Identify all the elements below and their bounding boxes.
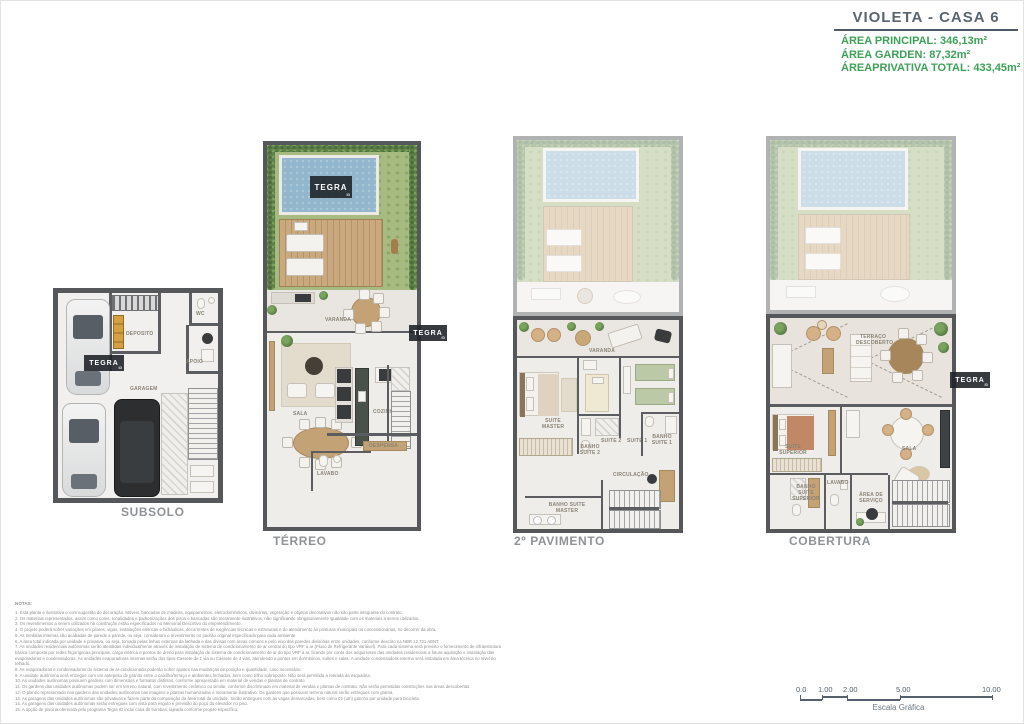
room-label-lavabo: LAVABO [827,480,849,486]
chair [355,323,366,334]
office-chair [647,474,657,484]
sala-round-table [890,416,924,450]
wall [641,412,679,414]
sink [333,455,341,463]
faded-garden [513,136,683,316]
room-label-sala: SALA [293,411,307,417]
garden: TEGRAID [267,145,417,290]
desk [623,366,631,394]
sink [533,516,542,525]
plant [595,322,604,331]
wall [327,433,417,436]
area-garden: ÁREA GARDEN: 87,32m² [841,49,1021,63]
tegra-id: ID [347,193,351,197]
pillow [779,419,786,430]
chair [882,424,894,436]
wall [517,356,679,358]
chair [922,352,933,363]
shrub-border [517,140,679,147]
wall [840,407,842,475]
room-label-terraco: TERRAÇO DESCOBERTO [856,334,890,346]
car-rear-glass [71,474,98,489]
shrub-border [267,145,275,290]
room-label-banho-suite-2: BANHO SUITE 2 [575,444,605,456]
plant [319,291,328,300]
tegra-brand: TEGRA [89,360,119,367]
room-label-banho-suite-master: BANHO SUITE MASTER [547,502,587,514]
sun-lounger [805,253,841,270]
faded-lower-floor [766,136,956,314]
pav2-shell: VARANDA SUITE MASTER SUITE 2 SUI [513,316,683,533]
utility-cabinet [190,465,214,477]
storage-boxes [113,315,124,349]
scale-tick: 5.00 [896,685,911,694]
pool: TEGRAID [279,155,379,215]
wall [601,480,603,529]
bed-suite1 [635,364,675,381]
room-label-sala: SALA [902,446,916,452]
car-windshield [69,419,99,443]
title-rule [834,29,1018,31]
pouf [817,320,827,330]
scale-segment [847,699,900,701]
sink [208,297,215,304]
faded-garden [766,136,956,314]
round-chair [826,326,841,341]
chair [912,370,923,381]
area-principal: ÁREA PRINCIPAL: 346,13m² [841,35,1021,49]
chair [898,328,909,339]
rattan-chair [575,330,591,346]
shower [595,418,619,436]
plant [774,322,787,335]
tegra-watermark: TEGRAID [409,325,447,341]
chair [371,321,382,332]
sink [547,516,556,525]
wall [311,451,371,453]
plant [856,518,864,526]
plant [281,335,293,347]
wall [158,293,161,354]
deck-table [294,222,308,231]
wall [186,371,218,374]
appliance [337,405,351,419]
stairs [892,504,950,527]
chair [892,372,903,383]
chair [379,307,390,318]
room-label-suite-1: SUITE 1 [627,438,647,444]
area-summary: ÁREA PRINCIPAL: 346,13m² ÁREA GARDEN: 87… [841,35,1021,76]
armchair [287,383,307,398]
chair [922,424,934,436]
room-label-deposito: DEPOSITO [126,331,153,337]
chair [299,419,310,430]
room-label-wc: WC [196,311,205,317]
utility-fixture [202,333,213,344]
stairs [609,510,661,529]
faded-varanda [770,280,952,310]
stairs [188,388,218,460]
wall [579,414,621,416]
area-privativa: ÁREAPRIVATIVA TOTAL: 433,45m² [841,62,1021,76]
plan-terreo: TEGRAID VARANDA [263,141,421,531]
wall [109,351,161,354]
armchair [315,383,335,398]
pillow [668,368,674,379]
stairs [892,480,950,503]
toilet [830,494,839,506]
faded-deck [798,214,910,280]
blanket [538,374,559,416]
bath-counter [581,418,591,436]
shrub-border [517,140,525,280]
shrub-border [409,145,417,290]
sun-lounger [286,234,324,252]
scale-bar: 0.0 1.00 2.00 5.00 10.00 Escala Gráfica [796,685,1001,715]
shrub-border [944,140,952,280]
pillow [526,377,534,391]
terreo-shell: TEGRAID VARANDA [263,141,421,531]
car-rear-glass [75,371,102,386]
grill [295,294,311,302]
floor-title-subsolo: SUBSOLO [121,505,185,519]
faded-furniture [531,288,561,300]
coffee-table [305,357,323,375]
headboard [520,373,525,417]
shrub-border [770,140,778,280]
toilet [792,504,801,516]
sun-lounger [546,229,582,246]
wall [641,412,643,456]
cabinet [846,410,860,438]
subsolo-shell: DEPOSITO WC APOIO GARAGEM TEGRAID [53,288,223,503]
faded-furniture [786,286,816,298]
scale-tickmark [992,695,993,700]
notes-heading: NOTAS: [15,601,503,606]
note-item: 4. O projeto poderá sofrer variações em … [15,627,503,633]
wall [186,325,189,373]
faded-furniture [577,288,593,304]
scale-segment [800,699,822,701]
wardrobe [519,438,573,456]
chair [282,437,293,448]
tegra-watermark: TEGRAID [84,355,124,371]
floor-title-cobertura: COBERTURA [789,534,871,548]
toilet [197,298,205,309]
dog-figure [391,239,398,254]
storage-shelves [112,295,160,311]
faded-lower-floor [513,136,683,316]
round-chair [547,328,561,342]
cobertura-shell: TERRAÇO DESCOBERTO SUITE SUPERIOR SALA [766,314,956,533]
wardrobe [772,458,822,472]
car-suv-dark [114,399,160,497]
wall [888,475,890,529]
scale-segment [822,696,847,698]
washer [866,508,878,520]
sideboard [822,348,834,374]
plant [267,305,277,315]
rug [561,378,577,412]
bed-suite1 [635,388,675,405]
room-label-circulacao: CIRCULAÇÃO [613,472,649,478]
room-label-varanda: VARANDA [589,348,615,354]
pillow [592,377,604,384]
floor-title-pavimento2: 2º PAVIMENTO [514,534,605,548]
room-label-apoio: APOIO [186,359,203,365]
shrub-border [267,145,417,152]
chair [880,350,891,361]
car-white-bottom [62,403,106,497]
wall [267,331,417,333]
note-item: 11. Os gardens das unidades autônomas po… [15,684,503,690]
island-sink [358,391,366,402]
faded-pool [543,148,639,202]
appliance [337,387,351,401]
tegra-brand: TEGRA [413,330,443,337]
faded-furniture [880,286,910,302]
floor-plan-sheet: VIOLETA - CASA 6 ÁREA PRINCIPAL: 346,13m… [0,0,1024,724]
deck [279,219,383,287]
suv-roof [120,421,153,482]
faded-furniture [613,290,641,304]
plan-subsolo: DEPOSITO WC APOIO GARAGEM TEGRAID [53,288,223,503]
appliance [337,369,351,383]
chair [359,289,370,300]
wall [311,451,313,491]
chair [900,408,912,420]
pillow [526,397,534,411]
tegra-brand: TEGRA [955,377,985,384]
plan-pavimento2: VARANDA SUITE MASTER SUITE 2 SUI [513,136,683,533]
room-label-suite-master: SUITE MASTER [537,418,569,430]
tegra-watermark: TEGRAID [950,372,990,388]
wall [525,496,603,498]
chair [315,417,326,428]
room-label-varanda: VARANDA [325,317,351,323]
plant [567,322,576,331]
utility-cabinet [190,481,214,493]
scale-segment [900,696,992,698]
room-label-garagem: GARAGEM [130,386,158,392]
closet-strip [828,410,836,456]
scale-caption: Escala Gráfica [796,703,1001,712]
desk [583,360,597,370]
tegra-brand: TEGRA [315,183,348,192]
bed-master [519,372,559,416]
tegra-id: ID [442,336,446,340]
bed-suite2 [585,374,609,412]
chair [373,293,384,304]
car-white-top [66,299,110,395]
room-label-banho-suite-superior: BANHO SUITE SUPERIOR [790,484,822,502]
garage-hatch-area [161,393,188,495]
scale-tick: 10.00 [982,685,1001,694]
room-label-suite-superior: SUITE SUPERIOR [776,444,810,456]
wall [770,404,952,407]
scale-tick: 2.00 [843,685,858,694]
terraco-floor: TERRAÇO DESCOBERTO [770,318,952,404]
wall [824,475,826,529]
tegra-watermark: TEGRAID [310,176,352,198]
faded-varanda [517,282,679,312]
wall [387,365,389,450]
wall [850,475,852,529]
note-item: 7. As unidades residenciais autônomas se… [15,644,503,667]
car-windshield [73,315,103,339]
outdoor-sofa [772,344,792,388]
chair [299,457,310,468]
wall [619,358,621,438]
scale-tick: 1.00 [818,685,833,694]
stair-rail [609,507,659,510]
faded-deck [543,206,633,282]
round-chair [531,328,545,342]
wall [189,323,218,326]
stair-rail [892,501,948,504]
pillow [668,392,674,403]
notes-block: NOTAS: 1. Esta planta é ilustrativa e co… [15,601,503,713]
wall [770,473,888,475]
shrub-border [770,140,952,147]
toilet [319,455,328,467]
sun-lounger [805,227,841,244]
room-label-despensa: DESPENSA [369,443,398,449]
note-item: 15. A opção de piscina oferecida pelo pr… [15,707,503,713]
tv-console [269,341,275,411]
sun-lounger [546,255,582,272]
scale-tick: 0.0 [796,685,806,694]
page-title: VIOLETA - CASA 6 [834,9,1018,26]
stair-void-hatch [391,367,410,391]
plan-cobertura: TERRAÇO DESCOBERTO SUITE SUPERIOR SALA [766,136,956,533]
tegra-id: ID [985,383,989,387]
toilet [645,416,654,427]
plant [934,322,948,336]
faded-pool [798,148,908,210]
sun-lounger [286,258,324,276]
wall [189,293,192,325]
shrub-border [671,140,679,280]
wall [577,358,579,454]
tegra-id: ID [119,366,123,370]
plant [519,322,529,332]
room-label-banho-suite-1: BANHO SUITE 1 [647,434,677,446]
room-label-lavabo: LAVABO [317,471,339,477]
office-desk [659,470,675,502]
kitchen-counter [940,410,950,468]
bath-counter [665,416,677,434]
chair [916,334,927,345]
floor-title-terreo: TÉRREO [273,534,327,548]
room-label-area-servico: ÁREA DE SERVIÇO [856,492,886,504]
plant [938,342,949,353]
